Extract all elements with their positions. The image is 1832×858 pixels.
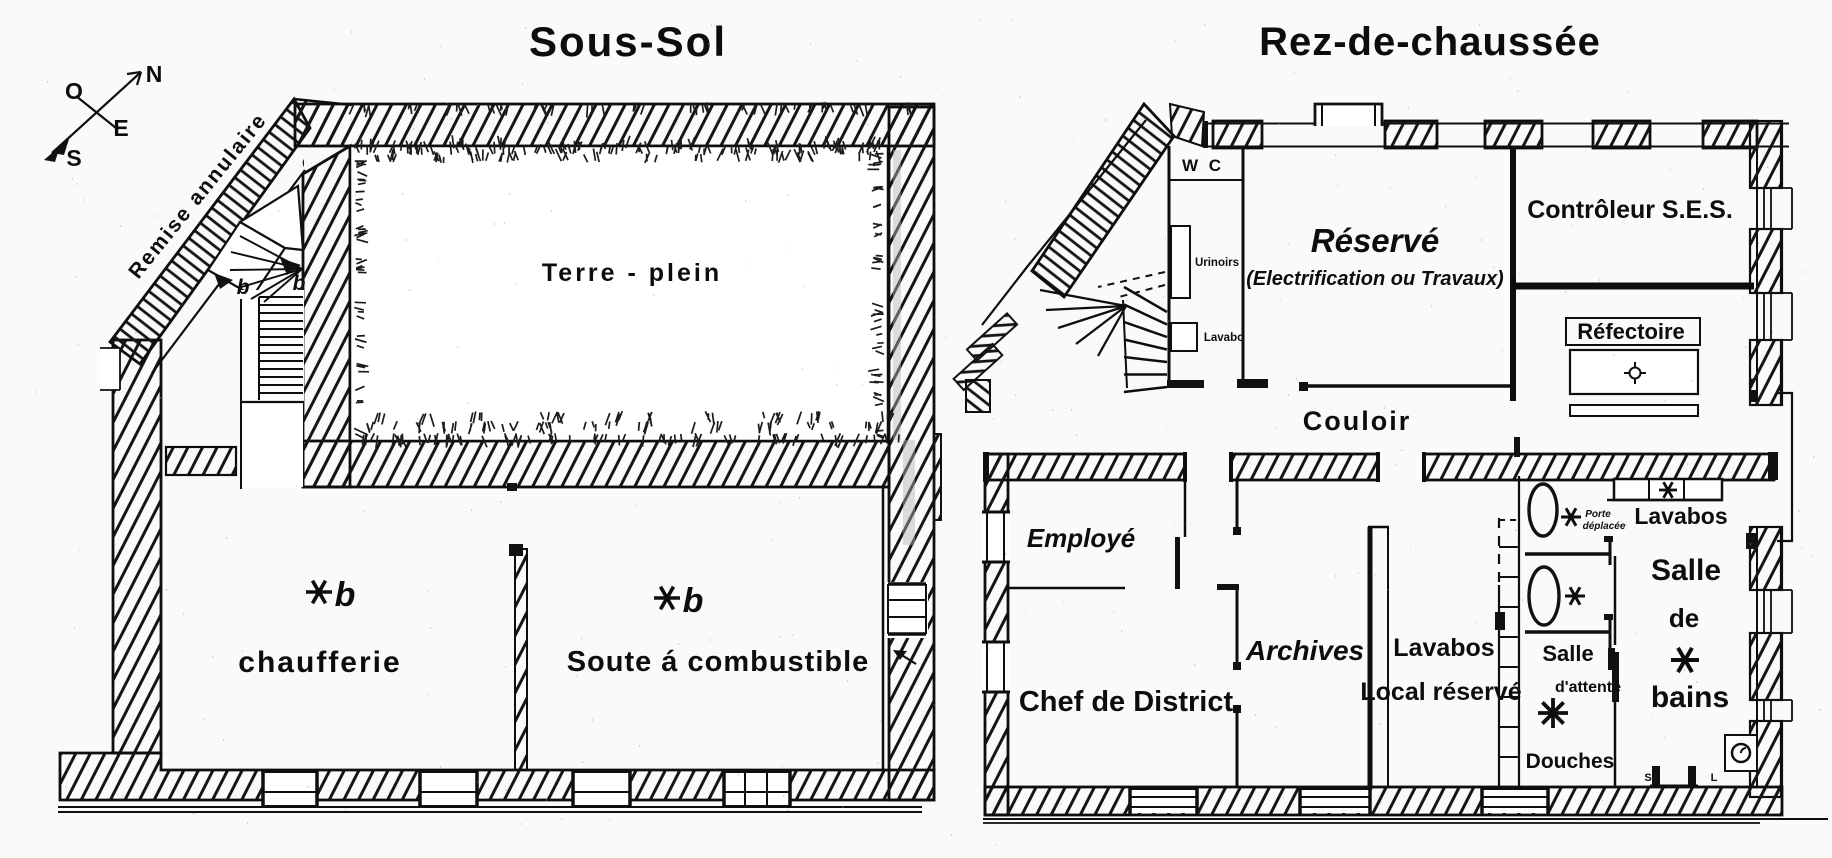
svg-text:Local réservé: Local réservé [1360, 678, 1521, 706]
svg-text:b: b [293, 272, 306, 295]
svg-text:O: O [65, 78, 83, 104]
svg-text:Couloir: Couloir [1303, 406, 1412, 436]
svg-text:Sous-Sol: Sous-Sol [529, 18, 727, 65]
svg-text:Salle: Salle [1651, 554, 1721, 587]
svg-text:Terre - plein: Terre - plein [542, 259, 722, 287]
svg-text:bains: bains [1651, 681, 1729, 714]
svg-text:Porte: Porte [1585, 509, 1611, 520]
svg-text:Lavabos: Lavabos [1393, 634, 1494, 662]
svg-text:Soute á combustible: Soute á combustible [567, 646, 870, 678]
svg-text:Douches: Douches [1526, 750, 1615, 773]
svg-text:déplacée: déplacée [1583, 521, 1626, 532]
svg-text:de: de [1669, 603, 1699, 633]
svg-text:S: S [66, 145, 81, 171]
svg-text:N: N [146, 61, 163, 87]
svg-text:E: E [113, 115, 128, 141]
svg-text:Employé: Employé [1027, 523, 1135, 553]
svg-text:Lavabo: Lavabo [1204, 332, 1244, 344]
svg-text:Réfectoire: Réfectoire [1577, 319, 1685, 344]
svg-text:b: b [237, 276, 250, 299]
svg-text:S: S [1644, 772, 1651, 784]
svg-text:Lavabos: Lavabos [1634, 503, 1727, 529]
svg-text:(Electrification ou Travaux): (Electrification ou Travaux) [1246, 268, 1504, 290]
svg-text:Archives: Archives [1245, 635, 1364, 666]
svg-text:Contrôleur S.E.S.: Contrôleur S.E.S. [1527, 196, 1733, 224]
svg-text:b: b [335, 576, 356, 614]
svg-text:Chef de District: Chef de District [1019, 686, 1234, 718]
svg-text:Urinoirs: Urinoirs [1195, 257, 1239, 269]
svg-text:Salle: Salle [1542, 641, 1593, 666]
svg-text:chaufferie: chaufferie [238, 646, 401, 679]
svg-text:Rez-de-chaussée: Rez-de-chaussée [1259, 20, 1601, 64]
svg-text:b: b [683, 582, 704, 620]
svg-text:d'attente: d'attente [1555, 679, 1621, 696]
svg-text:L: L [1711, 772, 1718, 784]
svg-text:W C: W C [1182, 156, 1224, 175]
svg-text:Réservé: Réservé [1311, 222, 1439, 259]
